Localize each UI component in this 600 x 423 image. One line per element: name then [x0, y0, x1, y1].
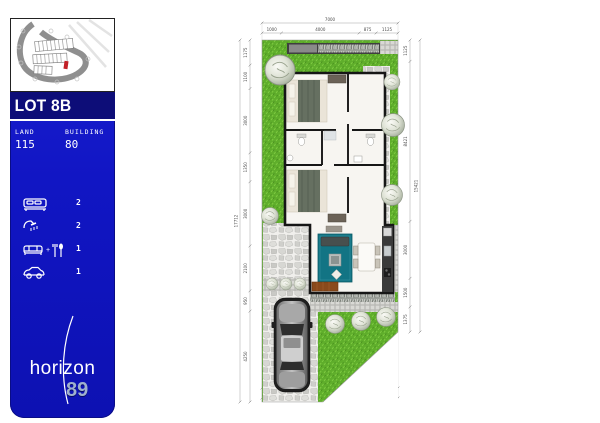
car-hood: [279, 304, 305, 322]
bed-icon: [22, 196, 48, 212]
sofa-icon: [22, 243, 44, 257]
dim-left-total: 17712: [233, 214, 238, 227]
amenity-carport: 1: [22, 265, 107, 281]
land-spec: LAND 115: [15, 128, 65, 151]
site-map-drawing: [11, 19, 114, 91]
wardrobe: [328, 75, 346, 83]
car-windshield: [280, 324, 304, 335]
amenity-living-dining: + 1: [22, 242, 107, 258]
dim-top-0: 1000: [267, 27, 278, 32]
toilet-tank: [297, 134, 306, 138]
front-patio: [263, 223, 310, 278]
building-value: 80: [65, 138, 115, 151]
bed-blanket: [298, 170, 320, 212]
burner: [385, 269, 387, 271]
tree: [262, 208, 279, 225]
sink: [354, 156, 362, 162]
dim-right-3: 1500: [403, 287, 408, 298]
dim-left-0: 1175: [243, 47, 248, 58]
tree: [382, 114, 405, 137]
land-label: LAND: [15, 128, 65, 136]
toilet: [367, 138, 373, 146]
shrub: [377, 308, 396, 327]
dim-left-2: 3000: [243, 115, 248, 126]
brand-logo: horizon 89: [10, 314, 115, 406]
land-value: 115: [15, 138, 65, 151]
lot-flyer: LOT 8B LAND 115 BUILDING 80 2: [0, 0, 600, 423]
wardrobe: [328, 214, 346, 222]
car: [272, 298, 313, 392]
amenity-bedrooms: 2: [22, 196, 107, 212]
fridge: [384, 228, 392, 236]
amenity-list: 2 2 +: [22, 196, 107, 281]
floor-plan: 7000 1000 4000 875 1125 1000 2000 1375 1…: [230, 10, 430, 415]
car-rear-window: [280, 362, 304, 370]
stove: [384, 268, 391, 277]
floor-plan-drawing: 7000 1000 4000 875 1125 1000 2000 1375 1…: [230, 10, 430, 415]
amenity-bathrooms: 2: [22, 219, 107, 235]
lot-specs: LAND 115 BUILDING 80: [10, 123, 115, 151]
sink: [287, 155, 293, 161]
tree: [382, 185, 403, 206]
utensils-icon: [52, 243, 64, 258]
shower-icon: [22, 219, 42, 235]
shrub: [266, 278, 278, 290]
bed-blanket: [298, 80, 320, 122]
living-dining-count: 1: [76, 244, 81, 253]
pillow: [289, 102, 295, 116]
pillow: [289, 84, 295, 98]
tree: [384, 74, 400, 90]
carport-count: 1: [76, 267, 81, 276]
burner: [388, 273, 390, 275]
shrub: [352, 312, 371, 331]
dim-top-2: 875: [364, 27, 372, 32]
toilet: [298, 138, 304, 146]
dim-right-0: 1125: [403, 45, 408, 56]
dim-right-1: 8421: [403, 136, 408, 147]
bathrooms-count: 2: [76, 221, 81, 230]
dim-left-3: 1350: [243, 162, 248, 173]
wall-hedge: [318, 45, 379, 53]
toilet-tank: [366, 134, 375, 138]
car-trunk: [279, 372, 305, 387]
tv-console: [326, 226, 342, 232]
dim-left-1: 1100: [243, 71, 248, 82]
coffee-table-top: [331, 256, 339, 264]
shrub: [280, 278, 292, 290]
shrub: [326, 315, 345, 334]
bedrooms-count: 2: [76, 198, 81, 207]
car-icon: [22, 266, 46, 280]
dim-right-2: 3000: [403, 244, 408, 255]
building-spec: BUILDING 80: [65, 128, 115, 151]
dim-right-total: 15421: [413, 179, 418, 192]
gate-panel: [289, 45, 317, 53]
car-sunroof: [284, 338, 301, 348]
shrub: [294, 278, 306, 290]
brand-number: 89: [66, 379, 88, 402]
sofa: [321, 237, 349, 246]
shower-tile: [324, 131, 336, 140]
car-mirror-right: [309, 322, 313, 328]
dim-right-4: 1375: [403, 314, 408, 325]
brand-name: horizon: [10, 358, 115, 380]
dim-top-total: 7000: [325, 17, 336, 22]
plus-sign: +: [46, 247, 50, 254]
dim-left-4: 3000: [243, 208, 248, 219]
dim-top-1: 4000: [315, 27, 326, 32]
dim-left-7: 4250: [243, 351, 248, 362]
site-map-thumbnail: [10, 18, 115, 92]
dim-top-3: 1125: [382, 27, 393, 32]
corner-pavers: [380, 41, 398, 54]
dim-left-5: 2100: [243, 263, 248, 274]
lot-title-band: LOT 8B: [10, 92, 115, 121]
kitchen-sink: [384, 246, 391, 256]
lot-info-panel: LOT 8B LAND 115 BUILDING 80 2: [10, 18, 115, 418]
map-neighbor-roads: [69, 20, 112, 67]
car-mirror-left: [272, 322, 276, 328]
building-label: BUILDING: [65, 128, 115, 136]
dining-table: [358, 243, 375, 271]
lot-title: LOT 8B: [10, 96, 71, 116]
pillow: [289, 174, 295, 188]
pillow: [289, 192, 295, 206]
wood-bench: [312, 282, 338, 291]
dim-left-6: 950: [243, 297, 248, 305]
tree: [265, 55, 295, 85]
